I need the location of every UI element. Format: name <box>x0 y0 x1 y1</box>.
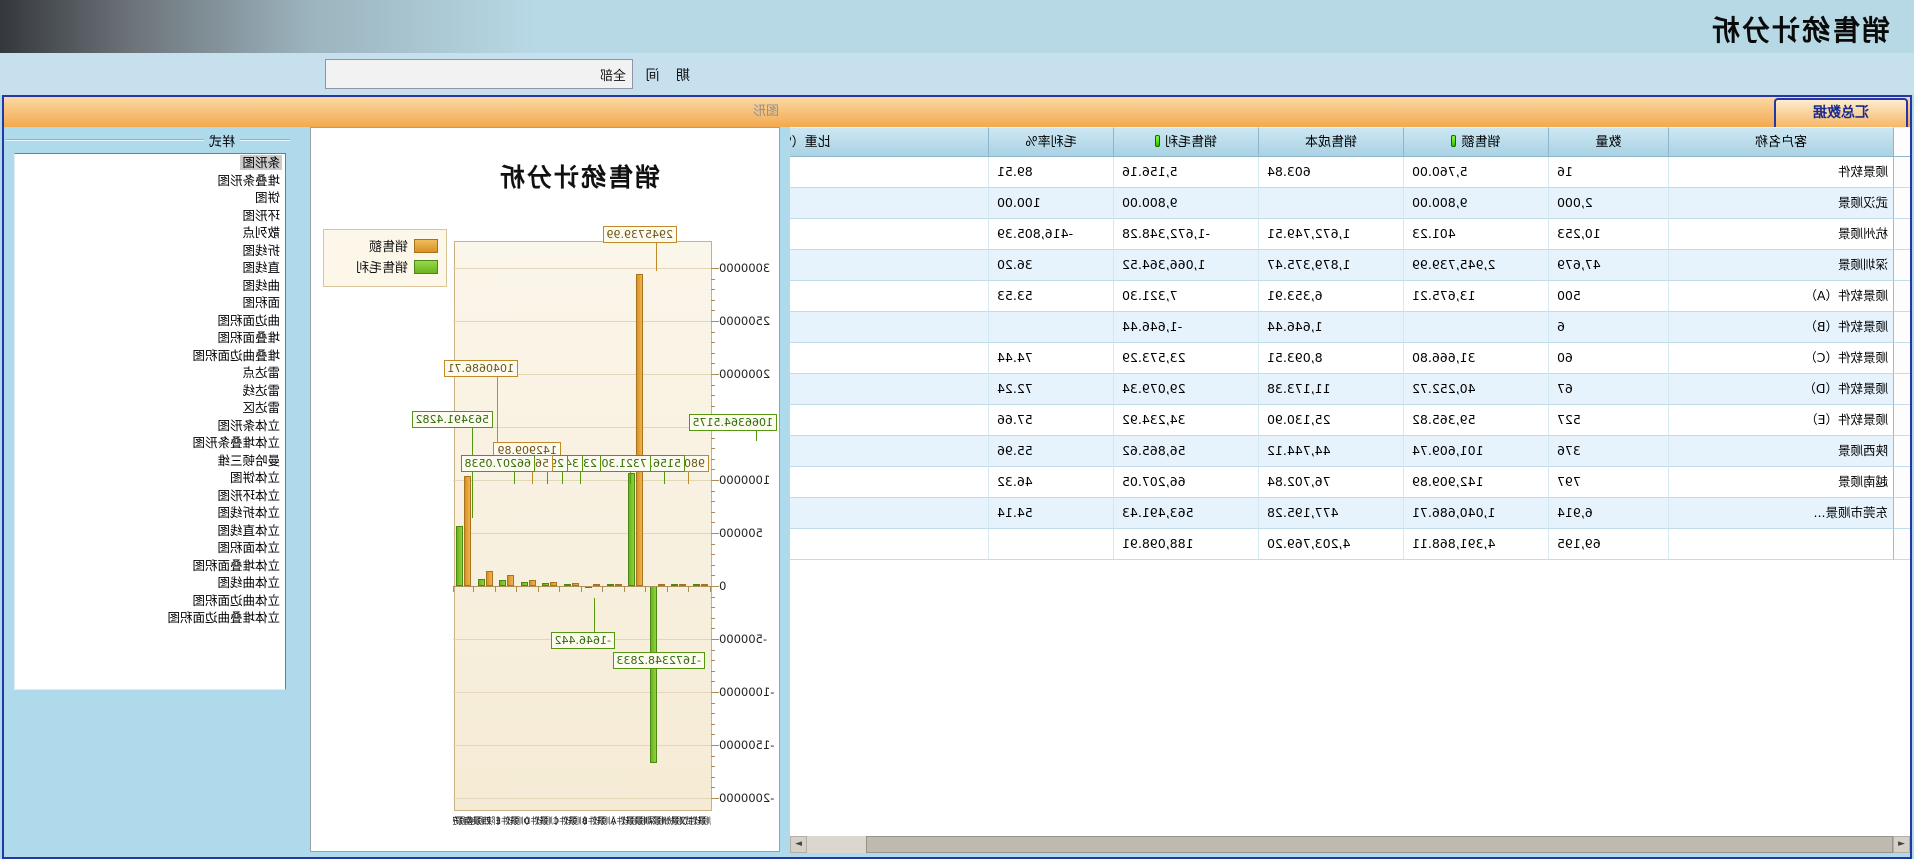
bar-sales <box>636 274 643 586</box>
category-tick <box>710 586 711 592</box>
table-cell[interactable] <box>790 467 988 498</box>
bar-profit <box>456 526 463 586</box>
style-list-item-label: 雷达点 <box>240 365 282 380</box>
style-list-item-label: 立体环形图 <box>215 488 282 503</box>
label-stem <box>594 598 595 632</box>
table-cell[interactable]: 越南顺景 <box>1668 467 1893 498</box>
table-cell[interactable]: 顺景软件（E） <box>1668 405 1893 436</box>
style-list-item[interactable]: 环形图 <box>15 207 285 225</box>
gridline <box>453 692 711 693</box>
y-axis-minor-tick <box>711 512 715 513</box>
table-cell[interactable] <box>790 157 988 188</box>
style-list-item[interactable]: 立体条形图 <box>15 417 285 435</box>
style-list-item[interactable]: 折线图 <box>15 242 285 260</box>
category-tick <box>603 586 604 592</box>
category-tick <box>495 586 496 592</box>
style-list-item-label: 堆叠面积图 <box>215 330 282 345</box>
style-list-item[interactable]: 立体堆叠条形图 <box>15 434 285 452</box>
table-cell[interactable]: 31,666.80 <box>1403 343 1548 374</box>
style-list-item-label: 雷达线 <box>240 383 282 398</box>
table-row: 陕西顺景376101,609.7444,744.1256,865.6255.96 <box>790 436 1910 467</box>
table-cell[interactable] <box>1403 312 1548 343</box>
table-row: 69,1954,391,868.114,203,769.20188,098.91 <box>790 529 1910 560</box>
bar-value-label: 2945739.99 <box>603 226 677 243</box>
table-cell[interactable]: 36.20 <box>988 250 1113 281</box>
label-stem <box>562 470 563 484</box>
category-tick <box>538 586 539 592</box>
table-cell[interactable]: 563,491.43 <box>1113 498 1258 529</box>
y-axis-minor-tick <box>711 618 715 619</box>
bar-sales <box>464 476 471 586</box>
label-stem <box>630 470 631 484</box>
tab-summary-data[interactable]: 汇总数据 <box>1774 98 1908 127</box>
label-stem <box>580 470 581 484</box>
y-axis-minor-tick <box>711 660 715 661</box>
style-caption: 样式 <box>204 131 240 150</box>
table-cell[interactable]: 53.53 <box>988 281 1113 312</box>
legend-entry: 销售额 <box>332 237 438 258</box>
table-cell[interactable]: 顺景软件 <box>1668 157 1893 188</box>
y-axis-minor-tick <box>711 756 715 757</box>
table-cell[interactable]: 2,000 <box>1548 188 1668 219</box>
table-cell[interactable]: 9,800.00 <box>1113 188 1258 219</box>
table-cell[interactable]: 11,173.38 <box>1258 374 1403 405</box>
y-axis-tick <box>711 745 719 746</box>
table-cell[interactable] <box>790 529 988 560</box>
table-cell[interactable]: 4,391,868.11 <box>1403 529 1548 560</box>
table-cell[interactable]: 6,353.91 <box>1258 281 1403 312</box>
table-cell[interactable] <box>790 250 988 281</box>
style-list-item-label: 立体堆叠曲边面积图 <box>165 610 282 625</box>
table-cell[interactable]: 25,130.90 <box>1258 405 1403 436</box>
table-cell[interactable]: 1,040,686.71 <box>1403 498 1548 529</box>
y-axis-minor-tick <box>711 310 715 311</box>
y-axis-minor-tick <box>711 363 715 364</box>
table-cell[interactable]: 7,321.30 <box>1113 281 1258 312</box>
grid-corner-cell <box>1893 127 1910 157</box>
style-list-item-label: 堆叠曲边面积图 <box>190 348 282 363</box>
table-cell[interactable]: 100.00 <box>988 188 1113 219</box>
style-list-item[interactable]: 雷达区 <box>15 399 285 417</box>
category-tick <box>624 586 625 592</box>
table-cell[interactable] <box>790 281 988 312</box>
period-input[interactable] <box>325 59 633 89</box>
style-list-item[interactable]: 立体折线图 <box>15 504 285 522</box>
style-list-item[interactable]: 立体曲边面积图 <box>15 592 285 610</box>
label-stem <box>547 470 548 484</box>
y-axis-tick <box>711 374 719 375</box>
style-list-item[interactable]: 饼图 <box>15 189 285 207</box>
y-axis-label: 2000000 <box>719 367 789 381</box>
row-selector-cell <box>1893 312 1910 343</box>
legend-swatch-icon <box>414 239 438 253</box>
y-axis-tick <box>711 639 719 640</box>
y-axis-minor-tick <box>711 395 715 396</box>
style-list-item[interactable]: 立体直线图 <box>15 522 285 540</box>
scroll-right-icon: ► <box>795 839 802 849</box>
y-axis-minor-tick <box>711 279 715 280</box>
table-cell[interactable]: 1,066,364.52 <box>1113 250 1258 281</box>
style-list-item[interactable]: 立体堆叠面积图 <box>15 557 285 575</box>
style-list-item-label: 立体折线图 <box>215 505 282 520</box>
table-row: 武汉顺景2,0009,800.009,800.00100.00 <box>790 188 1910 219</box>
bar-value-label: 7321.30 <box>598 455 652 472</box>
tab-strip: 汇总数据 图形 <box>4 97 1910 127</box>
table-cell[interactable]: 500 <box>1548 281 1668 312</box>
category-tick <box>646 586 647 592</box>
y-axis-minor-tick <box>711 628 715 629</box>
y-axis-label: -1500000 <box>719 738 789 752</box>
table-cell[interactable]: 188,098.91 <box>1113 529 1258 560</box>
label-stem <box>688 470 689 484</box>
style-list-item[interactable]: 条形图 <box>15 154 285 172</box>
table-cell[interactable] <box>790 188 988 219</box>
table-row: 顺景软件（B）61,646.44-1,646.44 <box>790 312 1910 343</box>
row-selector-cell <box>1893 188 1910 219</box>
grid-header-row: 客户名称数量销售额销售成本销售毛利毛利率%比重（%） <box>790 127 1910 157</box>
style-list-item-label: 立体堆叠面积图 <box>190 558 282 573</box>
column-header-2[interactable]: 销售额 <box>1403 127 1548 157</box>
table-row: 顺景软件（D）6740,252.7211,173.3829,079.3472.2… <box>790 374 1910 405</box>
row-selector-cell <box>1893 219 1910 250</box>
table-cell[interactable] <box>790 405 988 436</box>
table-cell[interactable] <box>988 312 1113 343</box>
style-list-item[interactable]: 立体环形图 <box>15 487 285 505</box>
style-list-item-label: 雷达区 <box>240 400 282 415</box>
y-axis-label: 0 <box>719 579 789 593</box>
y-axis-tick <box>711 692 719 693</box>
table-cell[interactable]: 陕西顺景 <box>1668 436 1893 467</box>
table-cell[interactable] <box>790 498 988 529</box>
table-row: 顺景软件（A）50013,675.216,353.917,321.3053.53 <box>790 281 1910 312</box>
y-axis-minor-tick <box>711 597 715 598</box>
table-cell[interactable]: 1,672,749.51 <box>1258 219 1403 250</box>
data-grid: 客户名称数量销售额销售成本销售毛利毛利率%比重（%） 顺景软件165,760.0… <box>790 127 1910 836</box>
chart-plot-area: 顺景软件武汉顺景杭州顺景深圳顺景顺景软件（A）顺景软件（B）顺景软件（C）顺景软… <box>454 241 712 811</box>
table-cell[interactable]: 深圳顺景 <box>1668 250 1893 281</box>
style-list-item-label: 直线图 <box>240 260 282 275</box>
row-selector-cell <box>1893 250 1910 281</box>
column-header-label: 数量 <box>1596 135 1622 150</box>
y-axis-minor-tick <box>711 522 715 523</box>
row-selector-cell <box>1893 281 1910 312</box>
table-cell[interactable]: 6 <box>1548 312 1668 343</box>
chart-panel: 销售统计分析 销售额销售毛利 顺景软件武汉顺景杭州顺景深圳顺景顺景软件（A）顺景… <box>310 127 780 852</box>
y-axis-tick <box>711 586 719 587</box>
label-stem <box>514 470 515 484</box>
y-axis-minor-tick <box>711 501 715 502</box>
scroll-left-button[interactable]: ◄ <box>1893 836 1910 853</box>
table-cell[interactable]: 1,879,375.47 <box>1258 250 1403 281</box>
legend-label: 销售额 <box>369 240 408 255</box>
y-axis-tick <box>711 480 719 481</box>
style-list-item-label: 曲边面积图 <box>215 313 282 328</box>
gridline <box>453 798 711 799</box>
column-header-3[interactable]: 销售成本 <box>1258 127 1403 157</box>
y-axis-minor-tick <box>711 332 715 333</box>
period-label: 期 间 <box>640 65 690 85</box>
style-list-item[interactable]: 雷达点 <box>15 364 285 382</box>
table-cell[interactable]: 603.84 <box>1258 157 1403 188</box>
y-axis-tick <box>711 268 719 269</box>
style-list-item-label: 立体直线图 <box>215 523 282 538</box>
mirrored-canvas: 销售统计分析 期 间 汇总数据 图形 客户名称数量销售额销售成本销售毛利毛利率%… <box>0 0 1914 859</box>
column-header-6[interactable]: 比重（%） <box>790 127 988 157</box>
table-cell[interactable] <box>790 343 988 374</box>
row-selector-cell <box>1893 498 1910 529</box>
y-axis-minor-tick <box>711 544 715 545</box>
y-axis-minor-tick <box>711 681 715 682</box>
table-cell[interactable]: 527 <box>1548 405 1668 436</box>
y-axis-minor-tick <box>711 777 715 778</box>
table-cell[interactable]: 5,156.16 <box>1113 157 1258 188</box>
y-axis-tick <box>711 533 719 534</box>
category-tick <box>474 586 475 592</box>
table-cell[interactable]: 顺景软件（B） <box>1668 312 1893 343</box>
column-header-label: 销售成本 <box>1305 135 1357 150</box>
table-cell[interactable]: 2,945,739.99 <box>1403 250 1548 281</box>
table-cell[interactable]: 23,573.29 <box>1113 343 1258 374</box>
table-cell[interactable]: 376 <box>1548 436 1668 467</box>
style-list-item[interactable]: 曼哈顿三维 <box>15 452 285 470</box>
legend-swatch-icon <box>414 260 438 274</box>
table-cell[interactable]: 55.96 <box>988 436 1113 467</box>
table-cell[interactable]: 59,365.82 <box>1403 405 1548 436</box>
style-list-item-label: 立体曲线图 <box>215 575 282 590</box>
y-axis-minor-tick <box>711 734 715 735</box>
table-cell[interactable]: 57.66 <box>988 405 1113 436</box>
table-cell[interactable]: 顺景软件（A） <box>1668 281 1893 312</box>
y-axis-label: 2500000 <box>719 314 789 328</box>
label-stem <box>664 470 665 484</box>
legend-entry: 销售毛利 <box>332 258 438 279</box>
bar-profit <box>478 579 485 586</box>
style-list-item[interactable]: 雷达线 <box>15 382 285 400</box>
table-cell[interactable]: 89.51 <box>988 157 1113 188</box>
window-title: 销售统计分析 <box>1710 9 1890 49</box>
style-list-item-label: 立体面积图 <box>215 540 282 555</box>
row-selector-cell <box>1893 436 1910 467</box>
bar-value-label: -1646.442 <box>551 632 615 649</box>
table-cell[interactable]: 13,675.21 <box>1403 281 1548 312</box>
y-axis-minor-tick <box>711 565 715 566</box>
y-axis-minor-tick <box>711 469 715 470</box>
style-list-item[interactable]: 面积图 <box>15 294 285 312</box>
y-axis-label: -1000000 <box>719 685 789 699</box>
column-header-4[interactable]: 销售毛利 <box>1113 127 1258 157</box>
table-cell[interactable]: 72.24 <box>988 374 1113 405</box>
y-axis-minor-tick <box>711 491 715 492</box>
category-tick <box>453 586 454 592</box>
table-cell[interactable]: 44,744.12 <box>1258 436 1403 467</box>
table-cell[interactable]: 10,253 <box>1548 219 1668 250</box>
chart-style-list[interactable]: 条形图堆叠条形图饼图环形图散列点折线图直线图曲线图面积图曲边面积图堆叠面积图堆叠… <box>14 153 286 690</box>
y-axis-minor-tick <box>711 385 715 386</box>
style-list-item-label: 曲线图 <box>240 278 282 293</box>
label-stem <box>656 241 657 271</box>
table-cell[interactable]: 797 <box>1548 467 1668 498</box>
y-axis-minor-tick <box>711 554 715 555</box>
gridline <box>453 533 711 534</box>
style-list-item[interactable]: 堆叠面积图 <box>15 329 285 347</box>
app-window: 销售统计分析 期 间 汇总数据 图形 客户名称数量销售额销售成本销售毛利毛利率%… <box>0 0 1914 859</box>
y-axis-minor-tick <box>711 650 715 651</box>
table-cell[interactable]: 67 <box>1548 374 1668 405</box>
table-cell[interactable]: 武汉顺景 <box>1668 188 1893 219</box>
bar-value-label: 1040686.71 <box>444 360 518 377</box>
table-cell[interactable]: 杭州顺景 <box>1668 219 1893 250</box>
table-cell[interactable] <box>790 219 988 250</box>
table-cell[interactable]: 16 <box>1548 157 1668 188</box>
gridline <box>453 480 711 481</box>
chart-legend: 销售额销售毛利 <box>323 229 447 287</box>
table-row: 顺景软件165,760.00603.845,156.1689.51 <box>790 157 1910 188</box>
style-list-item[interactable]: 直线图 <box>15 259 285 277</box>
row-selector-cell <box>1893 405 1910 436</box>
y-axis-minor-tick <box>711 438 715 439</box>
gridline <box>453 321 711 322</box>
y-axis-minor-tick <box>711 300 715 301</box>
column-header-label: 比重（%） <box>790 135 831 150</box>
y-axis-minor-tick <box>711 787 715 788</box>
style-list-item-label: 散列点 <box>240 225 282 240</box>
table-cell[interactable]: 29,079.34 <box>1113 374 1258 405</box>
table-cell[interactable]: -416,805.39 <box>988 219 1113 250</box>
table-cell[interactable]: 76,702.84 <box>1258 467 1403 498</box>
y-axis-minor-tick <box>711 353 715 354</box>
table-cell[interactable]: 1,646.44 <box>1258 312 1403 343</box>
table-cell[interactable]: 142,909.89 <box>1403 467 1548 498</box>
bar-sales <box>486 571 493 586</box>
style-groupbox-line <box>5 139 290 140</box>
row-selector-cell <box>1893 374 1910 405</box>
style-list-item-label: 堆叠条形图 <box>215 173 282 188</box>
table-cell[interactable]: 54.14 <box>988 498 1113 529</box>
table-cell[interactable]: 8,093.51 <box>1258 343 1403 374</box>
scroll-left-icon: ◄ <box>1898 839 1905 849</box>
table-row: 顺景软件（C）6031,666.808,093.5123,573.2974.44 <box>790 343 1910 374</box>
column-header-label: 毛利率% <box>1025 135 1076 150</box>
table-cell[interactable] <box>790 374 988 405</box>
green-indicator-icon <box>1452 135 1457 147</box>
horizontal-scrollbar[interactable]: ◄ ► <box>790 836 1910 853</box>
bar-profit <box>650 586 657 763</box>
row-selector-cell <box>1893 529 1910 560</box>
table-cell[interactable]: 101,609.74 <box>1403 436 1548 467</box>
table-cell[interactable]: 47,679 <box>1548 250 1668 281</box>
gridline <box>453 268 711 269</box>
category-tick <box>517 586 518 592</box>
table-row: 东莞市顺景...6,9141,040,686.71477,195.28563,4… <box>790 498 1910 529</box>
legend-label: 销售毛利 <box>356 261 408 276</box>
style-list-item[interactable]: 曲线图 <box>15 277 285 295</box>
chart-title: 销售统计分析 <box>419 158 739 194</box>
gridline <box>453 745 711 746</box>
table-cell[interactable] <box>790 312 988 343</box>
y-axis-minor-tick <box>711 289 715 290</box>
style-list-item[interactable]: 立体曲线图 <box>15 574 285 592</box>
table-cell[interactable]: 顺景软件（D） <box>1668 374 1893 405</box>
table-cell[interactable]: 74.44 <box>988 343 1113 374</box>
table-cell[interactable]: 东莞市顺景... <box>1668 498 1893 529</box>
table-cell[interactable] <box>1258 188 1403 219</box>
style-list-item[interactable]: 堆叠条形图 <box>15 172 285 190</box>
y-axis-minor-tick <box>711 724 715 725</box>
style-list-item[interactable]: 立体堆叠曲边面积图 <box>15 609 285 627</box>
table-cell[interactable]: 69,195 <box>1548 529 1668 560</box>
table-cell[interactable]: 9,800.00 <box>1403 188 1548 219</box>
label-stem <box>532 470 533 484</box>
table-cell[interactable]: 4,203,769.20 <box>1258 529 1403 560</box>
table-cell[interactable] <box>790 436 988 467</box>
category-tick <box>689 586 690 592</box>
column-header-0[interactable]: 客户名称 <box>1668 127 1893 157</box>
y-axis-minor-tick <box>711 459 715 460</box>
y-axis-label: 3000000 <box>719 261 789 275</box>
style-list-item[interactable]: 立体饼图 <box>15 469 285 487</box>
label-stem <box>472 426 473 518</box>
style-list-item[interactable]: 散列点 <box>15 224 285 242</box>
column-header-1[interactable]: 数量 <box>1548 127 1668 157</box>
row-selector-cell <box>1893 157 1910 188</box>
scroll-right-button[interactable]: ► <box>790 836 807 853</box>
y-axis-minor-tick <box>711 448 715 449</box>
style-list-item[interactable]: 立体面积图 <box>15 539 285 557</box>
style-list-item[interactable]: 堆叠曲边面积图 <box>15 347 285 365</box>
table-cell[interactable]: -1,646.44 <box>1113 312 1258 343</box>
table-cell[interactable]: 顺景软件（C） <box>1668 343 1893 374</box>
tab-graphics: 图形 <box>743 100 789 124</box>
y-axis-minor-tick <box>711 713 715 714</box>
table-cell[interactable]: 66,207.05 <box>1113 467 1258 498</box>
y-axis-minor-tick <box>711 575 715 576</box>
table-cell[interactable]: 46.32 <box>988 467 1113 498</box>
column-header-label: 销售额 <box>1462 135 1501 150</box>
filter-toolbar: 期 间 <box>0 53 1914 95</box>
table-cell[interactable]: 40,252.72 <box>1403 374 1548 405</box>
table-cell[interactable]: 60 <box>1548 343 1668 374</box>
table-cell[interactable]: 477,195.28 <box>1258 498 1403 529</box>
y-axis-minor-tick <box>711 671 715 672</box>
column-header-5[interactable]: 毛利率% <box>988 127 1113 157</box>
style-list-item-label: 环形图 <box>240 208 282 223</box>
style-list-item-label: 立体条形图 <box>215 418 282 433</box>
table-cell[interactable]: 6,914 <box>1548 498 1668 529</box>
bar-value-label: -1672348.2833 <box>613 652 705 669</box>
table-cell[interactable]: 5,760.00 <box>1403 157 1548 188</box>
style-list-item-label: 饼图 <box>253 190 282 205</box>
scrollbar-thumb[interactable] <box>866 836 1893 853</box>
y-axis-label: -500000 <box>719 632 789 646</box>
table-cell[interactable]: 401.23 <box>1403 219 1548 250</box>
y-axis-minor-tick <box>711 607 715 608</box>
category-tick <box>560 586 561 592</box>
y-axis-minor-tick <box>711 342 715 343</box>
category-tick <box>667 586 668 592</box>
table-cell[interactable]: 56,865.62 <box>1113 436 1258 467</box>
style-list-item-label: 折线图 <box>240 243 282 258</box>
y-axis-label: -2000000 <box>719 791 789 805</box>
y-axis-label: 1000000 <box>719 473 789 487</box>
table-cell[interactable] <box>1668 529 1893 560</box>
grid-body: 顺景软件165,760.00603.845,156.1689.51武汉顺景2,0… <box>790 157 1910 560</box>
style-list-item[interactable]: 曲边面积图 <box>15 312 285 330</box>
window-titlebar: 销售统计分析 <box>0 0 1914 53</box>
table-cell[interactable]: 34,234.92 <box>1113 405 1258 436</box>
table-cell[interactable]: -1,672,348.28 <box>1113 219 1258 250</box>
table-cell[interactable] <box>988 529 1113 560</box>
style-list-item-label: 曼哈顿三维 <box>215 453 282 468</box>
